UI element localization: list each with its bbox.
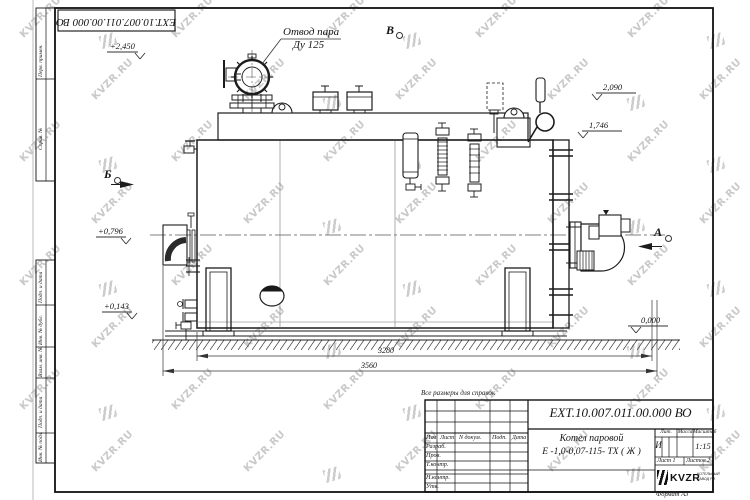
margin-label-podp-data-2: Подп. и дата	[39, 397, 45, 428]
tb-role-tkontr: Т.контр.	[426, 462, 449, 469]
view-label-b: Б	[104, 168, 112, 181]
dimension-3560: 3560	[361, 362, 377, 370]
title-block-doc-number: ЕХТ.10.007.011.00.000 ВО	[528, 406, 713, 420]
company-logo-name: KVZR	[670, 472, 700, 484]
elevation-top: +2,450	[110, 42, 135, 51]
view-label-v: В	[386, 24, 394, 37]
view-b-ref-circle	[114, 177, 121, 184]
callout-steam-outlet-line1: Отвод пара	[283, 27, 339, 39]
elevation-0796: +0,796	[98, 227, 123, 236]
elevation-0143: +0,143	[104, 302, 129, 311]
tb-header-list: Лист	[440, 435, 454, 441]
tb-header-ndoc: N докум.	[459, 435, 481, 441]
tb-header-data: Дата	[512, 435, 526, 441]
product-name-line2: Е -1,0-0,07-115- ТХ ( Ж )	[528, 448, 655, 458]
view-label-a: А	[654, 226, 662, 239]
tb-prop-mass: Масса	[677, 430, 693, 436]
view-a-ref-circle	[665, 235, 672, 242]
callout-steam-outlet-line2: Ду 125	[293, 40, 324, 52]
tb-role-nkontr: Н.контр.	[426, 475, 450, 482]
view-v-ref-circle	[396, 32, 403, 39]
tb-prop-lit: Лит.	[655, 430, 677, 436]
tb-header-izm: Изм	[426, 435, 436, 441]
tb-header-podp: Подп.	[492, 435, 507, 441]
margin-label-vzam-inv: Взам. инв. №	[39, 347, 45, 377]
tb-role-utv: Утв.	[426, 484, 439, 491]
drawing-sheet: KVZR.RUKVZR.RUKVZR.RUKVZR.RUKVZR.RUKVZR.…	[0, 0, 750, 500]
tb-prop-scale: Масштаб	[693, 430, 713, 436]
product-name-line1: Котел паровой	[528, 434, 655, 445]
format-label: Формат А3	[656, 492, 688, 499]
company-logo-stripes-icon	[657, 470, 668, 485]
dimension-3280: 3280	[378, 347, 394, 355]
company-logo-sub1: КОТЕЛЬНЫЙ	[697, 472, 720, 476]
tb-scale-value: 1:15	[693, 442, 713, 451]
text-layer: ЕХТ.10.007.011.00.000 ВО Перв. примен. С…	[0, 0, 750, 500]
top-stamp-doc-number: ЕХТ.10.007.011.00.000 ВО	[56, 15, 176, 27]
tb-sheets-total: Листов 2	[686, 458, 710, 464]
reference-note: Все размеры для справок	[421, 390, 495, 397]
tb-lit-value: И	[655, 441, 662, 450]
tb-role-razrab: Разраб.	[426, 444, 446, 451]
margin-label-inv-podl: Инв. № подл.	[39, 432, 45, 462]
tb-role-prov: Пров.	[426, 453, 441, 460]
margin-label-sprav-no: Справ. №	[39, 128, 45, 150]
margin-label-perv-primen: Перв. примен.	[39, 44, 45, 77]
elevation-1746: 1,746	[589, 121, 608, 130]
elevation-zero: 0,000	[641, 316, 660, 325]
elevation-2090: 2,090	[603, 83, 622, 92]
margin-label-inv-dubl: Инв. № дубл.	[39, 315, 45, 345]
tb-sheet-number: Лист 1	[657, 458, 676, 464]
company-logo-sub2: ЗАВОД РЭ	[697, 477, 715, 481]
margin-label-podp-data-1: Подп. и дата	[39, 272, 45, 303]
